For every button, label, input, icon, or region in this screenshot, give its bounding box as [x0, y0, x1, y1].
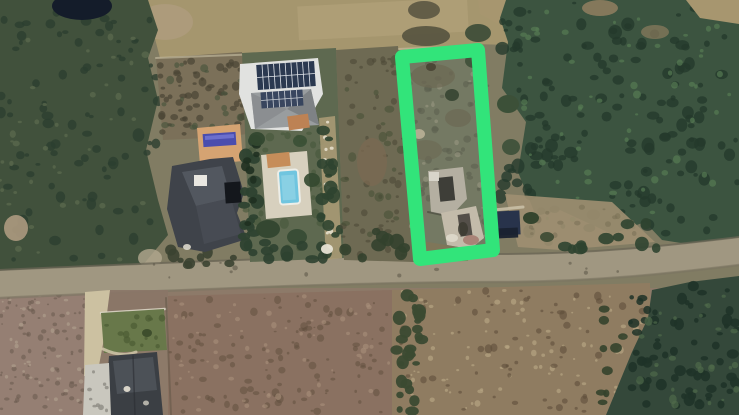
garden-tree-2 [293, 135, 307, 147]
swimming-pool-inner [281, 175, 296, 201]
scattered-tree-1 [497, 95, 519, 113]
roadside-white-marker [321, 244, 333, 254]
satellite-imagery [0, 0, 739, 415]
plot-structure-2-mark [458, 222, 468, 236]
plot-bush [445, 89, 459, 101]
forest-gap-1 [582, 0, 618, 16]
house2-solar-array-top [256, 61, 316, 90]
house3-roof-facet [113, 357, 157, 394]
lawn-bush [142, 329, 152, 337]
strip-brown-patch [357, 138, 387, 186]
house2-outbuilding-orange [287, 114, 310, 131]
garden-tree-4 [256, 220, 280, 238]
above-plot-tree [465, 24, 491, 42]
terrain-layer [0, 0, 739, 415]
blue-roof-structure-shadow [497, 227, 518, 238]
house2-solar-array-lower [260, 90, 303, 109]
house1-white-dot [183, 244, 191, 250]
house1-skylight [194, 175, 207, 186]
plot-structure-1-white-edge [429, 172, 439, 181]
garden-tree-1 [249, 132, 265, 146]
forest-gap-2 [641, 25, 669, 39]
plot-mottle-2 [445, 109, 471, 127]
above-plot-scrub [402, 26, 450, 46]
garden-tree-3 [304, 173, 320, 187]
scattered-tree-3 [523, 212, 539, 224]
scattered-tree-2 [502, 139, 520, 155]
above-plot-dark-blob [408, 1, 440, 19]
plot-dark-dot [426, 63, 436, 71]
pool-gazebo-orange [266, 152, 290, 168]
satellite-map-screenshot[interactable] [0, 0, 739, 415]
plot-structure-2-white [446, 234, 458, 242]
house3-white-dot-1 [124, 386, 131, 392]
house3-white-dot-2 [143, 401, 149, 406]
plot-structure-2-red-roof [463, 235, 479, 245]
plot-structure-1-courtyard [438, 176, 455, 201]
forest-left-clearing [4, 215, 28, 241]
scattered-tree-4 [540, 232, 554, 242]
house1-dark-panel [224, 181, 241, 203]
